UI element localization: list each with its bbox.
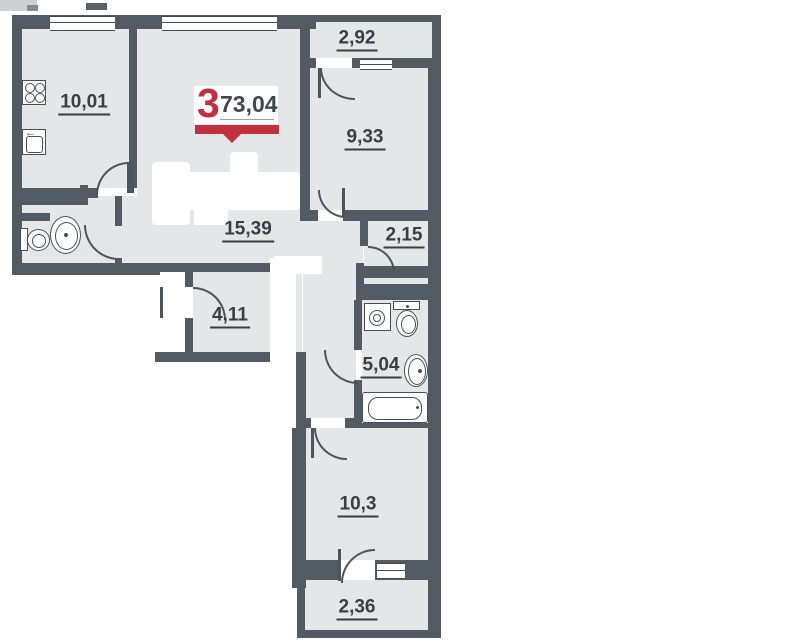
wall [300, 15, 310, 212]
room-label-bathroom: 5,04 [361, 356, 402, 379]
wall [362, 423, 428, 428]
scan-artifact [27, 5, 38, 11]
scan-artifact [86, 3, 107, 10]
wall [356, 284, 428, 300]
vestibule-floor [303, 263, 356, 426]
wall [12, 196, 88, 205]
window [50, 16, 115, 31]
balcony-railing [313, 15, 441, 22]
door-leaf [338, 549, 341, 581]
door-opening [185, 287, 193, 318]
room-label-hallway: 15,39 [222, 220, 274, 243]
wall [360, 218, 368, 246]
wall [12, 263, 160, 275]
door-opening [311, 418, 345, 428]
badge-rooms-count: 3 [197, 83, 220, 124]
window [360, 59, 392, 70]
furniture-silhouette [274, 256, 322, 274]
stove-icon [22, 80, 46, 105]
badge-pointer [223, 134, 241, 143]
door-leaf [160, 287, 163, 318]
window [377, 563, 405, 579]
toilet-bowl-icon [27, 229, 50, 251]
room-label-balcony-bottom: 2,36 [337, 598, 378, 621]
door-leaf [311, 428, 314, 458]
washbasin-icon [404, 354, 428, 387]
washing-machine-icon [364, 303, 391, 331]
door-opening [316, 58, 352, 68]
room-label-wardrobe: 4,11 [210, 306, 250, 329]
washbasin-icon [50, 216, 81, 254]
shaft-silhouette [270, 258, 296, 428]
balcony-railing [297, 630, 441, 638]
wall [115, 196, 122, 226]
window [162, 16, 277, 31]
wall [428, 58, 441, 638]
wall [18, 213, 50, 221]
room-label-bedroom-bottom: 10,3 [338, 495, 379, 518]
furniture-silhouette [230, 152, 258, 188]
wall [354, 300, 362, 350]
apartment-badge: 3 73,04 [194, 84, 280, 146]
toilet-bowl-icon [396, 310, 418, 337]
bathtub-icon [362, 392, 428, 423]
badge-ribbon [195, 125, 279, 134]
wall [80, 185, 88, 205]
room-label-balcony-top: 2,92 [337, 29, 378, 52]
kitchen-sink-icon: ← [22, 129, 46, 155]
door-leaf [318, 68, 321, 98]
toilet-icon [393, 301, 420, 310]
floor-plan: ← 10,01 2,92 9,33 15,39 2,15 4,11 5,04 1… [0, 0, 800, 644]
door-leaf [342, 188, 345, 216]
furniture-silhouette [152, 162, 190, 225]
balcony-railing [297, 572, 305, 636]
room-label-corridor: 2,15 [384, 226, 425, 249]
room-label-bedroom-right: 9,33 [345, 128, 386, 151]
wall [356, 263, 364, 288]
badge-total-area: 73,04 [220, 93, 278, 116]
wall [155, 352, 274, 362]
badge-underline [220, 119, 274, 120]
room-label-kitchen: 10,01 [58, 93, 110, 116]
door-leaf [127, 162, 134, 193]
